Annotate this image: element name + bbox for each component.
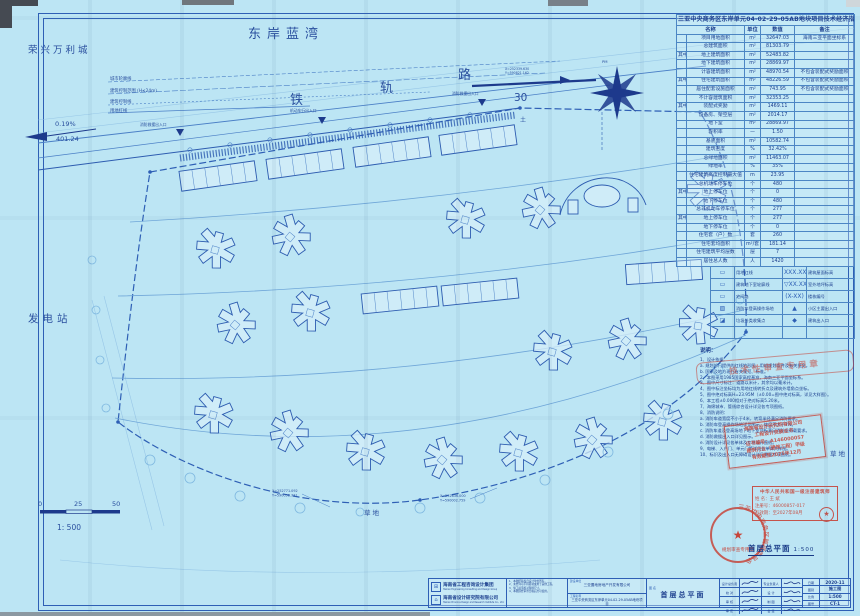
- scale-tick-25: 25: [74, 500, 82, 508]
- indicator-unit: m²: [745, 43, 761, 52]
- indicator-name: 住宅建筑面积: [687, 77, 745, 86]
- signature-scribble: [740, 588, 761, 596]
- info-value: 施工图: [820, 586, 850, 592]
- indicator-remark: [795, 51, 855, 60]
- indicator-group: [677, 94, 687, 103]
- client-field: 建设单位 三亚置地房地产开发有限公司: [568, 579, 646, 594]
- indicator-remark: [795, 43, 855, 52]
- indicator-value: 0: [761, 189, 795, 198]
- col-header-name: 名称: [677, 26, 745, 35]
- indicator-unit: %: [745, 146, 761, 155]
- indicator-row: 住宅套均面积 m²/套 181.14: [677, 240, 855, 249]
- indicator-value: 181.14: [761, 240, 795, 249]
- indicator-group: 其中: [677, 51, 687, 60]
- road-name-char-1: 铁: [290, 93, 303, 108]
- indicator-row: 总机动车停车位 个 480: [677, 180, 855, 189]
- indicator-remark: [795, 129, 855, 138]
- indicator-remark: [795, 154, 855, 163]
- indicator-remark: [795, 137, 855, 146]
- signature-label: 制 图: [762, 597, 782, 605]
- indicator-unit: m²: [745, 94, 761, 103]
- title-block: ⊞ 海南省工程咨询设计集团 Hainan Engineering Consult…: [428, 578, 851, 608]
- indicator-remark: [795, 111, 855, 120]
- org1-row: ⊞ 海南省工程咨询设计集团 Hainan Engineering Consult…: [431, 582, 504, 592]
- signature-label: 审 定: [720, 606, 740, 614]
- indicator-remark: 不包含装配式奖励面积: [795, 68, 855, 77]
- indicator-value: 1469.11: [761, 103, 795, 112]
- indicator-group: [677, 249, 687, 258]
- photo-edge-artifact: [0, 612, 430, 616]
- indicator-name: 项目用地面积: [687, 34, 745, 43]
- indicator-value: 28869.97: [761, 60, 795, 69]
- indicator-group: [677, 223, 687, 232]
- legend-label-left: 用地红线: [735, 267, 783, 279]
- indicator-remark: [795, 180, 855, 189]
- signature-label: 审 核: [720, 597, 740, 605]
- indicator-group: [677, 163, 687, 172]
- org2-logo-icon: ⌂: [431, 595, 441, 605]
- signature-scribble: [782, 606, 802, 614]
- col-header-unit: 单位: [745, 26, 761, 35]
- indicator-row: 总建筑面积 m² 81303.79: [677, 43, 855, 52]
- indicator-unit: 人: [745, 258, 761, 267]
- indicator-name: 住宅建筑高度控制最大值: [687, 172, 745, 181]
- legend-label-left: 垃圾分类收集点: [735, 315, 783, 327]
- indicator-value: 48226.59: [761, 77, 795, 86]
- indicator-unit: m²: [745, 111, 761, 120]
- entrance-label-fire-west: 消防救援出入口: [140, 122, 167, 127]
- control-line-label-4: 用地红线: [110, 107, 128, 114]
- coord-1-y: Y=590058.731: [272, 494, 297, 498]
- road-name-char-2: 轨: [380, 81, 393, 96]
- indicator-remark: [795, 223, 855, 232]
- indicator-row: 绿地率 % 35%: [677, 163, 855, 172]
- info-value: 2020-11: [820, 579, 850, 585]
- legend-symbol-left: ▨: [711, 303, 735, 315]
- indicator-value: 7: [761, 249, 795, 258]
- indicator-group: [677, 137, 687, 146]
- indicator-group: 其中: [677, 77, 687, 86]
- legend-symbol-right: ▽XX.XX: [783, 279, 807, 291]
- indicator-unit: m²: [745, 154, 761, 163]
- photo-edge-artifact: [182, 0, 234, 5]
- indicator-row: 其中 地上停车位 个 0: [677, 189, 855, 198]
- legend-label-right: 楼栋编号: [807, 291, 855, 303]
- indicator-remark: [795, 189, 855, 198]
- indicator-row: 不计容建筑面积 m² 32353.25: [677, 94, 855, 103]
- indicator-group: [677, 34, 687, 43]
- indicator-row: 容积率 — 1.50: [677, 129, 855, 138]
- indicator-group: [677, 146, 687, 155]
- signature-label: 设计总负责: [720, 579, 740, 587]
- indicator-row: 地下建筑面积 m² 28869.97: [677, 60, 855, 69]
- indicator-row: 其中 住宅建筑面积 m² 48226.59 不包含装配式奖励面积: [677, 77, 855, 86]
- photo-edge-artifact: [0, 0, 12, 28]
- signature-label: 会 签: [762, 606, 782, 614]
- indicator-name: 总机动车停车位: [687, 180, 745, 189]
- signature-scribble: [782, 588, 802, 596]
- entrance-court: [560, 112, 646, 215]
- indicator-group: [677, 206, 687, 215]
- indicator-value: 28869.97: [761, 120, 795, 129]
- indicator-name: 绿地率: [687, 163, 745, 172]
- info-grid: 日期 2020-11 图别 施工图 比例 1:500 图号 CT-1: [802, 579, 850, 607]
- legend-symbol-left: ▭: [711, 279, 735, 291]
- indicator-unit: m²: [745, 137, 761, 146]
- indicator-remark: [795, 94, 855, 103]
- indicators-rows: 项目用地面积 m² 32647.03 海南三亚平面坐标系 总建筑面积 m² 81…: [677, 34, 855, 266]
- indicator-name: 容积率: [687, 129, 745, 138]
- plan-caption: 首层总平面1:500: [748, 543, 814, 556]
- legend-table: ▭ 用地红线 XXX.XX 建筑屋面标高 ▭ 建筑地下室轮廓线 ▽XX.XX 室…: [710, 266, 854, 339]
- label-neighbor-nw: 荣兴万利城: [28, 44, 91, 56]
- indicator-group: [677, 172, 687, 181]
- indicator-value: 48970.54: [761, 68, 795, 77]
- legend-symbol-right: (X-XX): [783, 291, 807, 303]
- indicator-unit: 个: [745, 206, 761, 215]
- signature-grid: 设计总负责 专业负责人 校 对 设 计: [719, 579, 802, 607]
- indicator-name: 地上停车位: [687, 189, 745, 198]
- indicator-unit: m²: [745, 86, 761, 95]
- coord-2-y: Y=590002.759: [440, 499, 465, 503]
- indicator-row: 住宅套（户）数 套 260: [677, 232, 855, 241]
- project-field: 工程名称 三亚中央商务区东岸单元04-02-29-05AB地块项目: [568, 594, 646, 608]
- photo-edge-artifact: [846, 0, 860, 7]
- indicator-name: 基底面积: [687, 137, 745, 146]
- legend-row: ▭ 建筑地下室轮廓线 ▽XX.XX 室外地坪标高: [711, 279, 855, 291]
- indicators-table: 三亚中央商务区东岸单元04-02-29-05AB地块项目技术经济指标 名称 单位…: [676, 14, 854, 267]
- indicator-name: 总建筑面积: [687, 43, 745, 52]
- indicator-row: 地下停车位 个 480: [677, 197, 855, 206]
- indicator-unit: m²: [745, 77, 761, 86]
- indicator-name: 不计容建筑面积: [687, 94, 745, 103]
- scale-ratio: 1: 500: [57, 523, 81, 532]
- signature-row: 校 对 设 计: [720, 588, 802, 597]
- org1-eng: Hainan Engineering Consulting and Design…: [443, 588, 497, 591]
- indicator-unit: 套: [745, 232, 761, 241]
- circular-approval-stamp: 三亚中央商务区管理委员会 ★ 规划审查专用章: [706, 503, 770, 567]
- info-label: 图别: [803, 586, 820, 592]
- slope-grade: 0.19%: [55, 120, 76, 128]
- legend-symbol-right: ◆: [783, 315, 807, 327]
- legend-label-left: 消防车登高操作场地: [735, 303, 783, 315]
- indicator-unit: m: [745, 172, 761, 181]
- legend-rows: ▭ 用地红线 XXX.XX 建筑屋面标高 ▭ 建筑地下室轮廓线 ▽XX.XX 室…: [711, 267, 855, 339]
- legend-row: ◪ 垃圾分类收集点 ◆ 建筑出入口: [711, 315, 855, 327]
- indicator-remark: [795, 103, 855, 112]
- indicator-unit: m²: [745, 51, 761, 60]
- indicator-row: 其中 地上建筑面积 m² 52483.82: [677, 51, 855, 60]
- indicator-row: 设备房、架空层 m² 2014.17: [677, 111, 855, 120]
- indicator-value: 260: [761, 232, 795, 241]
- coord-top-y: Y=590821.162: [505, 71, 529, 75]
- indicator-name: 居住配套设施面积: [687, 86, 745, 95]
- indicator-value: 480: [761, 180, 795, 189]
- entrance-label-fire-mid: 消防救援出入口: [452, 91, 479, 96]
- indicator-row: 其中 装配式奖励 m² 1469.11: [677, 103, 855, 112]
- indicator-unit: 层: [745, 249, 761, 258]
- indicator-group: [677, 111, 687, 120]
- indicator-name: 总绿地面积: [687, 154, 745, 163]
- road-name-char-3: 路: [458, 67, 471, 83]
- blueprint-sheet: 东岸蓝湾 荣兴万利城 发电站 草地 草地 土 PM 铁 轨 路 30 0.19%…: [0, 0, 860, 616]
- building-footprints: [179, 125, 729, 487]
- titleblock-notes-cell: 1、本图纸版权归设计单位所有。2、未经许可不得复制或用于其他工程。3、施工前须核…: [506, 579, 567, 607]
- indicator-remark: 海南三亚平面坐标系: [795, 34, 855, 43]
- indicator-row: 计容建筑面积 m² 48970.54 不包含装配式奖励面积: [677, 68, 855, 77]
- indicator-remark: [795, 120, 855, 129]
- coord-2-x: X=252836.000: [440, 494, 466, 498]
- indicator-name: 建筑密度: [687, 146, 745, 155]
- indicator-value: 0: [761, 223, 795, 232]
- indicator-remark: [795, 146, 855, 155]
- legend-symbol-right: XXX.XX: [783, 267, 807, 279]
- control-line-label-2: 建筑控制范围 (H≤24m): [110, 87, 157, 94]
- signature-row: 审 核 制 图: [720, 597, 802, 606]
- control-line-label-3: 建筑控制线: [110, 98, 132, 105]
- org2-eng: Hainan Province Design and Research Inst…: [443, 601, 504, 604]
- indicator-name: 总非机动车停车位: [687, 206, 745, 215]
- label-grass-bottom: 草地: [364, 508, 381, 517]
- legend-label-right: 室外地坪标高: [807, 279, 855, 291]
- indicator-value: 32647.03: [761, 34, 795, 43]
- indicator-value: 11463.07: [761, 154, 795, 163]
- signature-scribble: [740, 606, 761, 614]
- indicator-value: 2014.17: [761, 111, 795, 120]
- indicator-remark: [795, 197, 855, 206]
- circular-stamp-star: ★: [733, 528, 744, 542]
- indicator-value: 35%: [761, 163, 795, 172]
- col-header-value: 数值: [761, 26, 795, 35]
- label-soil: 土: [520, 116, 526, 124]
- legend-symbol-right: [783, 327, 807, 339]
- signature-row: 设计总负责 专业负责人: [720, 579, 802, 588]
- legend-symbol-left: [711, 327, 735, 339]
- indicator-group: [677, 120, 687, 129]
- info-value: CT-1: [820, 601, 850, 607]
- indicator-remark: [795, 60, 855, 69]
- indicator-remark: [795, 232, 855, 241]
- indicator-unit: m²: [745, 60, 761, 69]
- info-row: 图别 施工图: [803, 586, 850, 593]
- legend-label-left: 建筑地下室轮廓线: [735, 279, 783, 291]
- info-row: 日期 2020-11: [803, 579, 850, 586]
- indicator-group: [677, 129, 687, 138]
- indicator-group: [677, 258, 687, 267]
- indicator-unit: 个: [745, 215, 761, 224]
- indicator-value: 743.95: [761, 86, 795, 95]
- indicator-group: [677, 154, 687, 163]
- col-header-remark: 备注: [795, 26, 855, 35]
- indicator-row: 住宅建筑高度控制最大值 m 23.95: [677, 172, 855, 181]
- legend-symbol-right: ▲: [783, 303, 807, 315]
- indicator-value: 32353.25: [761, 94, 795, 103]
- indicator-value: 81303.79: [761, 43, 795, 52]
- org1-logo-icon: ⊞: [431, 582, 441, 592]
- indicator-unit: 个: [745, 180, 761, 189]
- info-row: 图号 CT-1: [803, 601, 850, 607]
- architect-seal-icon: ★: [819, 507, 834, 522]
- plan-caption-scale: 1:500: [794, 547, 815, 553]
- legend-label-left: [735, 327, 783, 339]
- indicator-unit: m²: [745, 120, 761, 129]
- architect-stamp-title: 中华人民共和国一级注册建筑师: [755, 489, 835, 496]
- indicator-value: 52483.82: [761, 51, 795, 60]
- indicator-value: 1.50: [761, 129, 795, 138]
- indicator-group: [677, 86, 687, 95]
- org2-row: ⌂ 海南省设计研究院有限公司 Hainan Province Design an…: [431, 595, 504, 605]
- legend-label-left: 宅间路: [735, 291, 783, 303]
- indicator-remark: 不包含装配式奖励面积: [795, 77, 855, 86]
- titleblock-note-line: 4、本图须经审查合格后方可使用。: [509, 590, 565, 593]
- indicator-value: 480: [761, 197, 795, 206]
- indicator-value: 32.42%: [761, 146, 795, 155]
- indicator-remark: 不包含装配式奖励面积: [795, 86, 855, 95]
- indicator-name: 地下停车位: [687, 223, 745, 232]
- indicator-name: 计容建筑面积: [687, 68, 745, 77]
- road-width-label: 30: [514, 92, 527, 104]
- scale-tick-50: 50: [112, 500, 120, 508]
- indicator-value: 1420: [761, 258, 795, 267]
- indicator-group: [677, 43, 687, 52]
- legend-label-right: [807, 327, 855, 339]
- indicator-name: 地下停车位: [687, 197, 745, 206]
- indicator-name: 地上建筑面积: [687, 51, 745, 60]
- indicator-group: [677, 240, 687, 249]
- info-row: 比例 1:500: [803, 594, 850, 601]
- indicator-unit: 个: [745, 197, 761, 206]
- legend-row: ▭ 宅间路 (X-XX) 楼栋编号: [711, 291, 855, 303]
- scale-bar: 0 25 50 1: 500: [38, 500, 120, 532]
- indicator-group: [677, 68, 687, 77]
- indicator-name: 地下建筑面积: [687, 60, 745, 69]
- signature-scribble: [782, 597, 802, 605]
- legend-symbol-left: ▭: [711, 267, 735, 279]
- indicator-unit: —: [745, 129, 761, 138]
- indicator-name: 装配式奖励: [687, 103, 745, 112]
- indicator-row: 建筑密度 % 32.42%: [677, 146, 855, 155]
- indicator-row: 总绿地面积 m² 11463.07: [677, 154, 855, 163]
- indicator-value: 10582.74: [761, 137, 795, 146]
- indicator-row: 居住总人数 人 1420: [677, 258, 855, 267]
- legend-label-right: 建筑屋面标高: [807, 267, 855, 279]
- indicator-group: 其中: [677, 215, 687, 224]
- photo-edge-artifact: [548, 0, 588, 6]
- photo-edge-artifact: [12, 0, 38, 6]
- signature-label: 专业负责人: [762, 579, 782, 587]
- indicator-name: 住宅建筑平均层数: [687, 249, 745, 258]
- legend-row: ▨ 消防车登高操作场地 ▲ 小区主要出入口: [711, 303, 855, 315]
- indicator-name: 设备房、架空层: [687, 111, 745, 120]
- indicator-remark: [795, 172, 855, 181]
- indicator-value: 23.95: [761, 172, 795, 181]
- indicator-group: [677, 180, 687, 189]
- legend-label-right: 小区主要出入口: [807, 303, 855, 315]
- signature-label: 校 对: [720, 588, 740, 596]
- indicator-name: 地下室: [687, 120, 745, 129]
- info-label: 日期: [803, 579, 820, 585]
- indicator-value: 277: [761, 206, 795, 215]
- indicator-unit: 个: [745, 223, 761, 232]
- indicator-name: 住宅套（户）数: [687, 232, 745, 241]
- north-arrow-icon: [579, 55, 655, 131]
- legend-label-right: 建筑出入口: [807, 315, 855, 327]
- label-pm: PM: [602, 59, 608, 64]
- indicator-remark: [795, 215, 855, 224]
- indicator-group: 其中: [677, 103, 687, 112]
- scale-tick-0: 0: [38, 500, 42, 508]
- indicator-remark: [795, 163, 855, 172]
- indicator-remark: [795, 240, 855, 249]
- indicator-row: 地下停车位 个 0: [677, 223, 855, 232]
- indicator-name: 地上停车位: [687, 215, 745, 224]
- info-label: 比例: [803, 594, 820, 600]
- indicator-value: 277: [761, 215, 795, 224]
- legend-row: ▭ 用地红线 XXX.XX 建筑屋面标高: [711, 267, 855, 279]
- label-power-station: 发电站: [28, 312, 72, 325]
- entrance-label-vehicle: 机动车行出入口: [290, 108, 317, 113]
- legend-row: [711, 327, 855, 339]
- info-value: 1:500: [820, 594, 850, 600]
- indicator-unit: m²: [745, 34, 761, 43]
- indicator-row: 地下室 m² 28869.97: [677, 120, 855, 129]
- drawing-name-label: 图 名: [647, 586, 656, 590]
- project-cell: 建设单位 三亚置地房地产开发有限公司 工程名称 三亚中央商务区东岸单元04-02…: [567, 579, 646, 607]
- indicator-row: 基底面积 m² 10582.74: [677, 137, 855, 146]
- indicators-title: 三亚中央商务区东岸单元04-02-29-05AB地块项目技术经济指标: [677, 15, 855, 26]
- indicator-group: [677, 232, 687, 241]
- indicator-group: [677, 197, 687, 206]
- control-line-label-1: 城市轮廓线: [110, 75, 132, 82]
- indicator-unit: 个: [745, 189, 761, 198]
- indicator-unit: m²: [745, 103, 761, 112]
- indicator-unit: m²: [745, 68, 761, 77]
- indicator-unit: %: [745, 163, 761, 172]
- indicator-name: 住宅套均面积: [687, 240, 745, 249]
- legend-symbol-left: ▭: [711, 291, 735, 303]
- signature-row: 审 定 会 签: [720, 606, 802, 614]
- indicator-remark: [795, 206, 855, 215]
- entrance-markers: [176, 99, 486, 136]
- coord-1-x: X=252771.092: [272, 489, 298, 493]
- legend-symbol-left: ◪: [711, 315, 735, 327]
- indicator-row: 总非机动车停车位 个 277: [677, 206, 855, 215]
- indicator-name: 居住总人数: [687, 258, 745, 267]
- indicator-row: 居住配套设施面积 m² 743.95 不包含装配式奖励面积: [677, 86, 855, 95]
- indicator-group: 其中: [677, 189, 687, 198]
- indicator-remark: [795, 258, 855, 267]
- indicator-row: 住宅建筑平均层数 层 7: [677, 249, 855, 258]
- slope-length: 401.24: [56, 135, 79, 143]
- signature-scribble: [782, 579, 802, 587]
- indicator-row: 项目用地面积 m² 32647.03 海南三亚平面坐标系: [677, 34, 855, 43]
- signature-scribble: [740, 597, 761, 605]
- design-org-cell: ⊞ 海南省工程咨询设计集团 Hainan Engineering Consult…: [429, 579, 506, 607]
- coordinate-leaders: [302, 488, 497, 507]
- indicator-remark: [795, 249, 855, 258]
- drawing-name-cell: 图 名 首层总平面: [646, 579, 719, 607]
- signature-label: 设 计: [762, 588, 782, 596]
- plan-caption-title: 首层总平面: [748, 544, 791, 553]
- label-bay: 东岸蓝湾: [248, 26, 324, 42]
- info-label: 图号: [803, 601, 820, 607]
- signature-scribble: [740, 579, 761, 587]
- drawing-name-value: 首层总平面: [661, 590, 706, 600]
- indicator-row: 其中 地上停车位 个 277: [677, 215, 855, 224]
- indicator-unit: m²/套: [745, 240, 761, 249]
- indicator-group: [677, 60, 687, 69]
